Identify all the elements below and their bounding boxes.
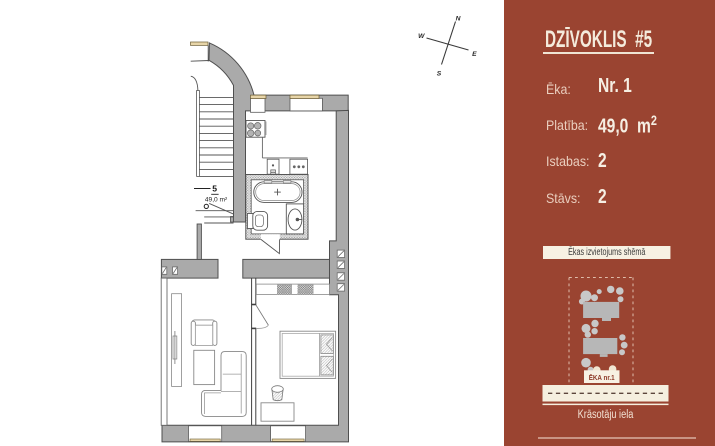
svg-text:E: E — [472, 51, 477, 58]
svg-text:S: S — [437, 71, 442, 78]
svg-text:5: 5 — [212, 183, 217, 193]
svg-text:N: N — [456, 16, 461, 23]
svg-text:W: W — [418, 33, 425, 40]
svg-text:ĒKA nr.1: ĒKA nr.1 — [589, 374, 615, 382]
svg-text:49,0 m²: 49,0 m² — [205, 196, 228, 203]
